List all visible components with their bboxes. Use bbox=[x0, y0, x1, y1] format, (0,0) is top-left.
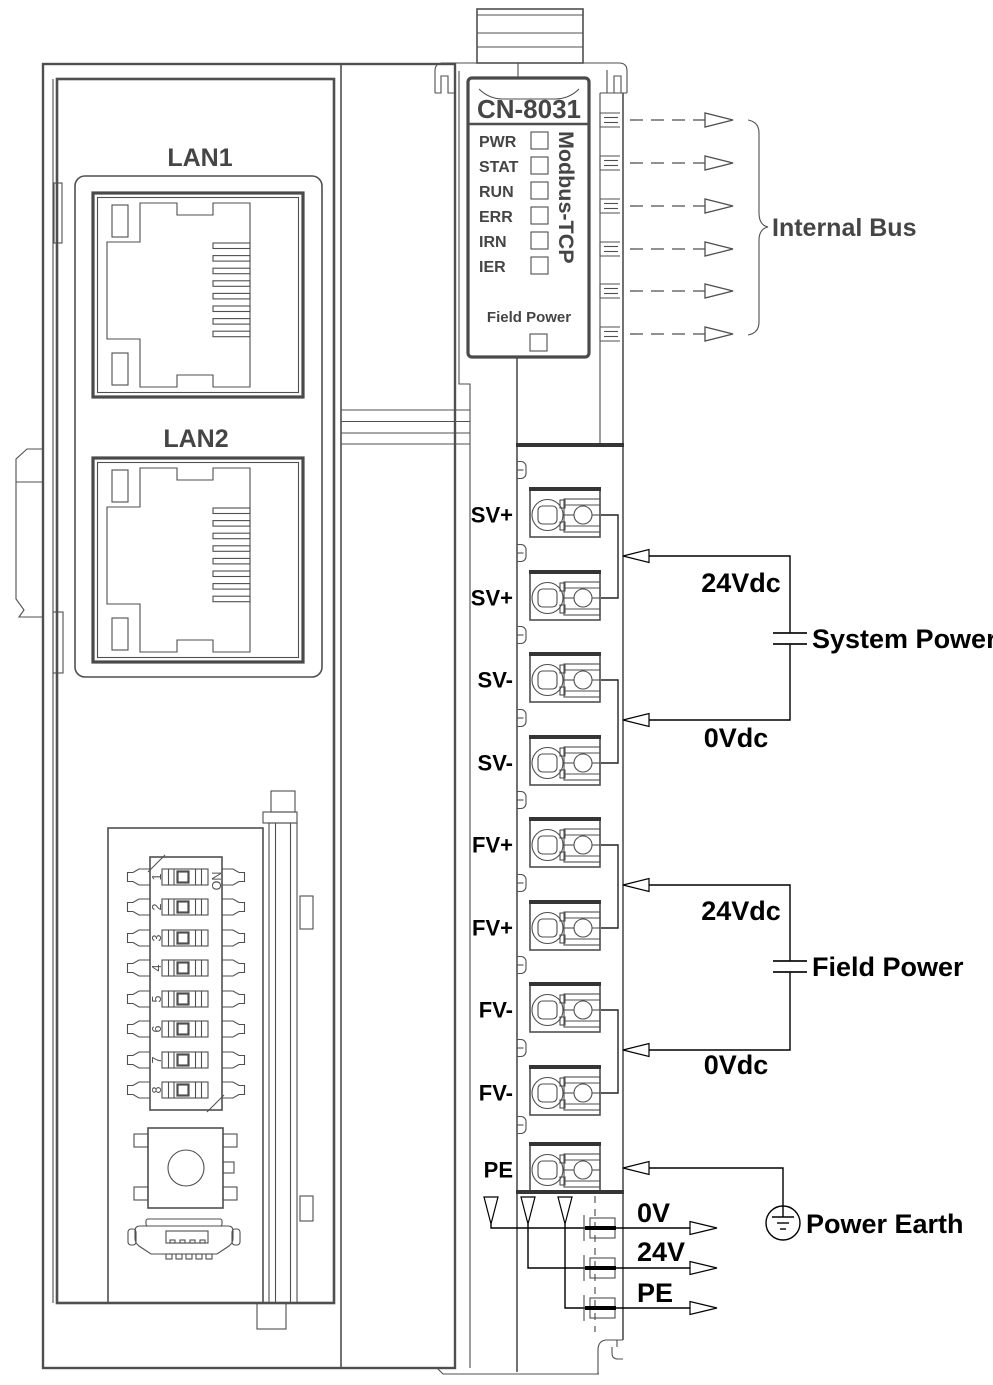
bus-signal-arrow bbox=[630, 113, 733, 127]
model-number: CN-8031 bbox=[477, 94, 581, 124]
internal-bus-label: Internal Bus bbox=[772, 214, 916, 242]
dip-number-1: 1 bbox=[150, 873, 164, 880]
strip-contact-bump bbox=[517, 1117, 526, 1134]
reset-button-cap bbox=[168, 1150, 204, 1186]
dip-on-label: ON bbox=[210, 872, 224, 891]
wiring-diagram-page: LAN1 LAN2 1 bbox=[0, 0, 993, 1385]
dip-number-7: 7 bbox=[150, 1056, 164, 1063]
feed-through-contact bbox=[584, 1295, 616, 1321]
dip-switch-2 bbox=[128, 899, 245, 915]
wire-arrow bbox=[690, 1262, 717, 1275]
terminal-label: FV+ bbox=[472, 833, 513, 858]
micro-usb-port bbox=[128, 1219, 240, 1259]
device-wiring-diagram: LAN1 LAN2 1 bbox=[0, 0, 993, 1385]
dip-switch-4 bbox=[128, 960, 245, 976]
bus-signal-arrow bbox=[630, 242, 733, 256]
dip-number-3: 3 bbox=[150, 934, 164, 941]
lan1-label: LAN1 bbox=[167, 144, 232, 172]
terminal-block bbox=[529, 902, 601, 950]
bus-signal-arrow bbox=[630, 156, 733, 170]
protocol-label: Modbus-TCP bbox=[554, 131, 578, 264]
led-label-err: ERR bbox=[479, 209, 513, 226]
terminal-label: FV+ bbox=[472, 916, 513, 941]
system-power-wiring: 24Vdc System Power 0Vdc bbox=[623, 550, 993, 754]
terminal-label: PE bbox=[484, 1158, 513, 1183]
led-indicator-pwr bbox=[531, 132, 548, 149]
internal-bus-group: Internal Bus bbox=[600, 113, 916, 341]
lan2-label: LAN2 bbox=[163, 425, 228, 453]
led-indicator-stat bbox=[531, 157, 548, 174]
dip-switch-8 bbox=[128, 1082, 245, 1098]
terminal-block bbox=[529, 819, 601, 867]
controller-inner-panel bbox=[57, 79, 334, 1303]
strip-contact-bump bbox=[517, 792, 526, 809]
dip-switch-3 bbox=[128, 930, 245, 946]
wire-arrow bbox=[623, 879, 649, 892]
led-indicator-run bbox=[531, 182, 548, 199]
terminal-pair-jumpers bbox=[601, 515, 618, 1093]
strip-contact-bump bbox=[517, 1040, 526, 1057]
down-arrow bbox=[521, 1197, 535, 1224]
bus-signal-arrow bbox=[630, 199, 733, 213]
bus-output-lines: 0V 24V PE bbox=[484, 1196, 717, 1374]
field-power-label: Field Power bbox=[812, 952, 964, 982]
lan-panel: LAN1 LAN2 bbox=[75, 144, 322, 677]
terminal-label: SV- bbox=[478, 668, 513, 693]
feed-through-contact bbox=[584, 1215, 616, 1241]
field-power-led-indicator bbox=[530, 334, 547, 351]
wire-arrow bbox=[690, 1302, 717, 1315]
system-power-plus-label: 24Vdc bbox=[701, 568, 781, 598]
internal-bus-brace bbox=[748, 120, 768, 335]
led-label-run: RUN bbox=[479, 184, 514, 201]
terminal-label: FV- bbox=[479, 1081, 513, 1106]
dip-switch-7 bbox=[128, 1052, 245, 1068]
down-arrow bbox=[484, 1197, 498, 1224]
terminal-block bbox=[529, 654, 601, 702]
terminal-label: FV- bbox=[479, 998, 513, 1023]
dip-panel: 1 2 3 4 5 6 7 8 ON bbox=[108, 791, 313, 1329]
dip-switch-1 bbox=[128, 869, 245, 885]
wire-arrow bbox=[690, 1222, 717, 1235]
bus-contact bbox=[600, 242, 620, 256]
strip-contact-bump bbox=[517, 627, 526, 644]
terminal-block bbox=[529, 1067, 601, 1115]
dip-switch-5 bbox=[128, 991, 245, 1007]
din-hook bbox=[598, 1340, 623, 1374]
terminal-block bbox=[529, 984, 601, 1032]
output-label: PE bbox=[637, 1278, 673, 1308]
bus-contact bbox=[600, 327, 620, 341]
dip-number-5: 5 bbox=[150, 995, 164, 1002]
terminal-strip: SV+ SV+ SV- SV- FV+ FV+ FV- FV- PE bbox=[471, 445, 624, 1192]
bus-contact bbox=[600, 113, 620, 127]
strip-contact-bump bbox=[517, 957, 526, 974]
power-earth-symbol bbox=[766, 1206, 800, 1240]
bus-contact bbox=[600, 156, 620, 170]
down-arrow bbox=[558, 1197, 572, 1224]
terminal-block bbox=[529, 572, 601, 620]
led-indicator-ier bbox=[531, 257, 548, 274]
dip-switch-6 bbox=[128, 1021, 245, 1037]
led-indicator-err bbox=[531, 207, 548, 224]
dip-number-4: 4 bbox=[150, 964, 164, 971]
dip-number-8: 8 bbox=[150, 1086, 164, 1093]
strip-contact-bump bbox=[517, 710, 526, 727]
field-power-wiring: 24Vdc Field Power 0Vdc bbox=[623, 879, 964, 1081]
feed-through-contact bbox=[584, 1255, 616, 1281]
led-label-ier: IER bbox=[479, 259, 506, 276]
led-label-irn: IRN bbox=[479, 234, 507, 251]
controller-outline bbox=[43, 64, 455, 1368]
dip-number-2: 2 bbox=[150, 903, 164, 910]
field-power-plus-label: 24Vdc bbox=[701, 896, 781, 926]
module-top-connector bbox=[477, 9, 583, 78]
led-indicator-irn bbox=[531, 232, 548, 249]
bus-contact bbox=[600, 284, 620, 298]
system-power-minus-label: 0Vdc bbox=[704, 723, 769, 753]
output-label: 0V bbox=[637, 1198, 670, 1228]
led-label-pwr: PWR bbox=[479, 134, 517, 151]
strip-contact-bump bbox=[517, 875, 526, 892]
bus-signal-arrow bbox=[630, 284, 733, 298]
wire-arrow bbox=[623, 550, 649, 563]
module-faceplate: CN-8031 PWR STAT RUN ERR IRN IER Modbus-… bbox=[468, 78, 589, 357]
wire-arrow bbox=[623, 1162, 649, 1175]
field-power-minus-label: 0Vdc bbox=[704, 1050, 769, 1080]
lan2-port bbox=[93, 458, 303, 662]
terminal-block bbox=[529, 1144, 601, 1192]
terminal-label: SV+ bbox=[471, 503, 513, 528]
strip-contact-bump bbox=[517, 462, 526, 479]
terminal-label: SV+ bbox=[471, 586, 513, 611]
terminal-label: SV- bbox=[478, 751, 513, 776]
bus-signal-arrow bbox=[630, 327, 733, 341]
card-rail bbox=[257, 791, 313, 1329]
strip-contact-bump bbox=[517, 545, 526, 562]
bus-contact bbox=[600, 199, 620, 213]
output-label: 24V bbox=[637, 1237, 685, 1267]
reset-button bbox=[134, 1128, 237, 1208]
power-earth-label: Power Earth bbox=[806, 1209, 964, 1239]
wire-arrow bbox=[623, 1044, 649, 1057]
dip-number-6: 6 bbox=[150, 1025, 164, 1032]
terminal-block bbox=[529, 489, 601, 537]
lan1-port bbox=[93, 193, 303, 397]
wire-arrow bbox=[623, 714, 649, 727]
system-power-label: System Power bbox=[812, 624, 993, 654]
field-power-led-label: Field Power bbox=[487, 309, 571, 326]
dip-switch-block: 1 2 3 4 5 6 7 8 ON bbox=[128, 855, 245, 1112]
terminal-block bbox=[529, 737, 601, 785]
led-label-stat: STAT bbox=[479, 159, 519, 176]
